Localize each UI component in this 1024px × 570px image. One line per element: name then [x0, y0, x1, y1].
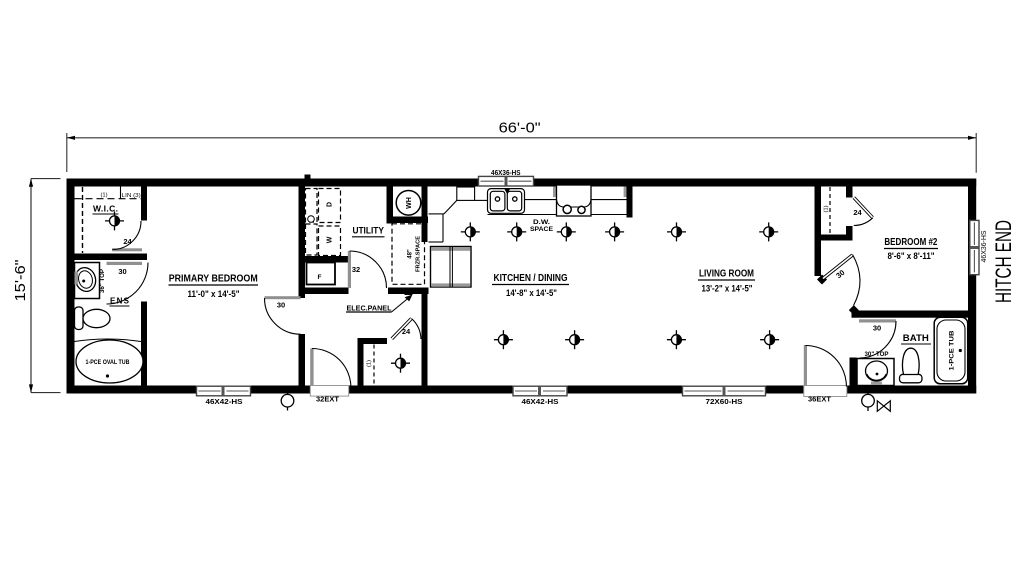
svg-text:1-PCE TUB: 1-PCE TUB	[949, 330, 956, 370]
svg-text:ENS: ENS	[110, 297, 130, 306]
svg-text:SPACE: SPACE	[530, 226, 554, 233]
svg-text:72X60-HS: 72X60-HS	[706, 399, 743, 406]
svg-text:13'-2" x 14'-5": 13'-2" x 14'-5"	[702, 284, 753, 294]
svg-text:46X36-HS: 46X36-HS	[491, 170, 521, 177]
svg-text:36EXT: 36EXT	[808, 397, 832, 404]
svg-text:WH: WH	[406, 197, 413, 209]
svg-text:(1): (1)	[367, 360, 373, 367]
svg-text:46X36-HS: 46X36-HS	[981, 230, 988, 262]
svg-text:8'-6" x 8'-11": 8'-6" x 8'-11"	[888, 251, 935, 261]
svg-text:32EXT: 32EXT	[316, 397, 340, 404]
svg-text:14'-8" x 14'-5": 14'-8" x 14'-5"	[506, 288, 557, 298]
svg-text:30: 30	[277, 301, 285, 310]
svg-text:D.W.: D.W.	[533, 219, 550, 226]
svg-text:ELEC.PANEL: ELEC.PANEL	[347, 304, 392, 313]
svg-text:BEDROOM #2: BEDROOM #2	[884, 236, 937, 248]
svg-text:HITCH END: HITCH END	[991, 220, 1016, 303]
svg-text:66'-0": 66'-0"	[499, 120, 541, 137]
svg-text:30" TOP: 30" TOP	[865, 352, 889, 358]
svg-text:24: 24	[853, 208, 862, 217]
svg-text:36" TOP: 36" TOP	[100, 269, 106, 293]
svg-text:46X42-HS: 46X42-HS	[522, 399, 559, 406]
svg-text:LIN (3): LIN (3)	[122, 193, 141, 199]
svg-text:KITCHEN / DINING: KITCHEN / DINING	[494, 272, 568, 284]
svg-text:(1): (1)	[824, 205, 830, 212]
svg-text:30: 30	[873, 324, 881, 333]
svg-text:15'-6": 15'-6"	[12, 260, 29, 302]
svg-text:30: 30	[118, 267, 126, 276]
svg-text:FRZR.SPACE: FRZR.SPACE	[416, 236, 422, 272]
svg-text:1-PCE OVAL TUB: 1-PCE OVAL TUB	[86, 360, 131, 366]
svg-text:46X42-HS: 46X42-HS	[206, 399, 243, 406]
svg-text:BATH: BATH	[903, 333, 929, 344]
svg-text:W.I.C.: W.I.C.	[93, 204, 118, 214]
svg-text:UTILITY: UTILITY	[352, 226, 384, 236]
svg-text:LIVING ROOM: LIVING ROOM	[699, 268, 754, 280]
svg-text:W: W	[327, 236, 334, 243]
svg-text:(1): (1)	[100, 193, 107, 199]
svg-text:11'-0" x 14'-5": 11'-0" x 14'-5"	[188, 289, 240, 299]
svg-text:48": 48"	[408, 249, 414, 259]
svg-text:PRIMARY BEDROOM: PRIMARY BEDROOM	[169, 273, 258, 285]
svg-text:D: D	[327, 202, 334, 207]
svg-text:F: F	[318, 274, 322, 281]
svg-text:24: 24	[402, 327, 411, 336]
svg-text:32: 32	[352, 265, 360, 274]
svg-text:24: 24	[123, 237, 132, 246]
